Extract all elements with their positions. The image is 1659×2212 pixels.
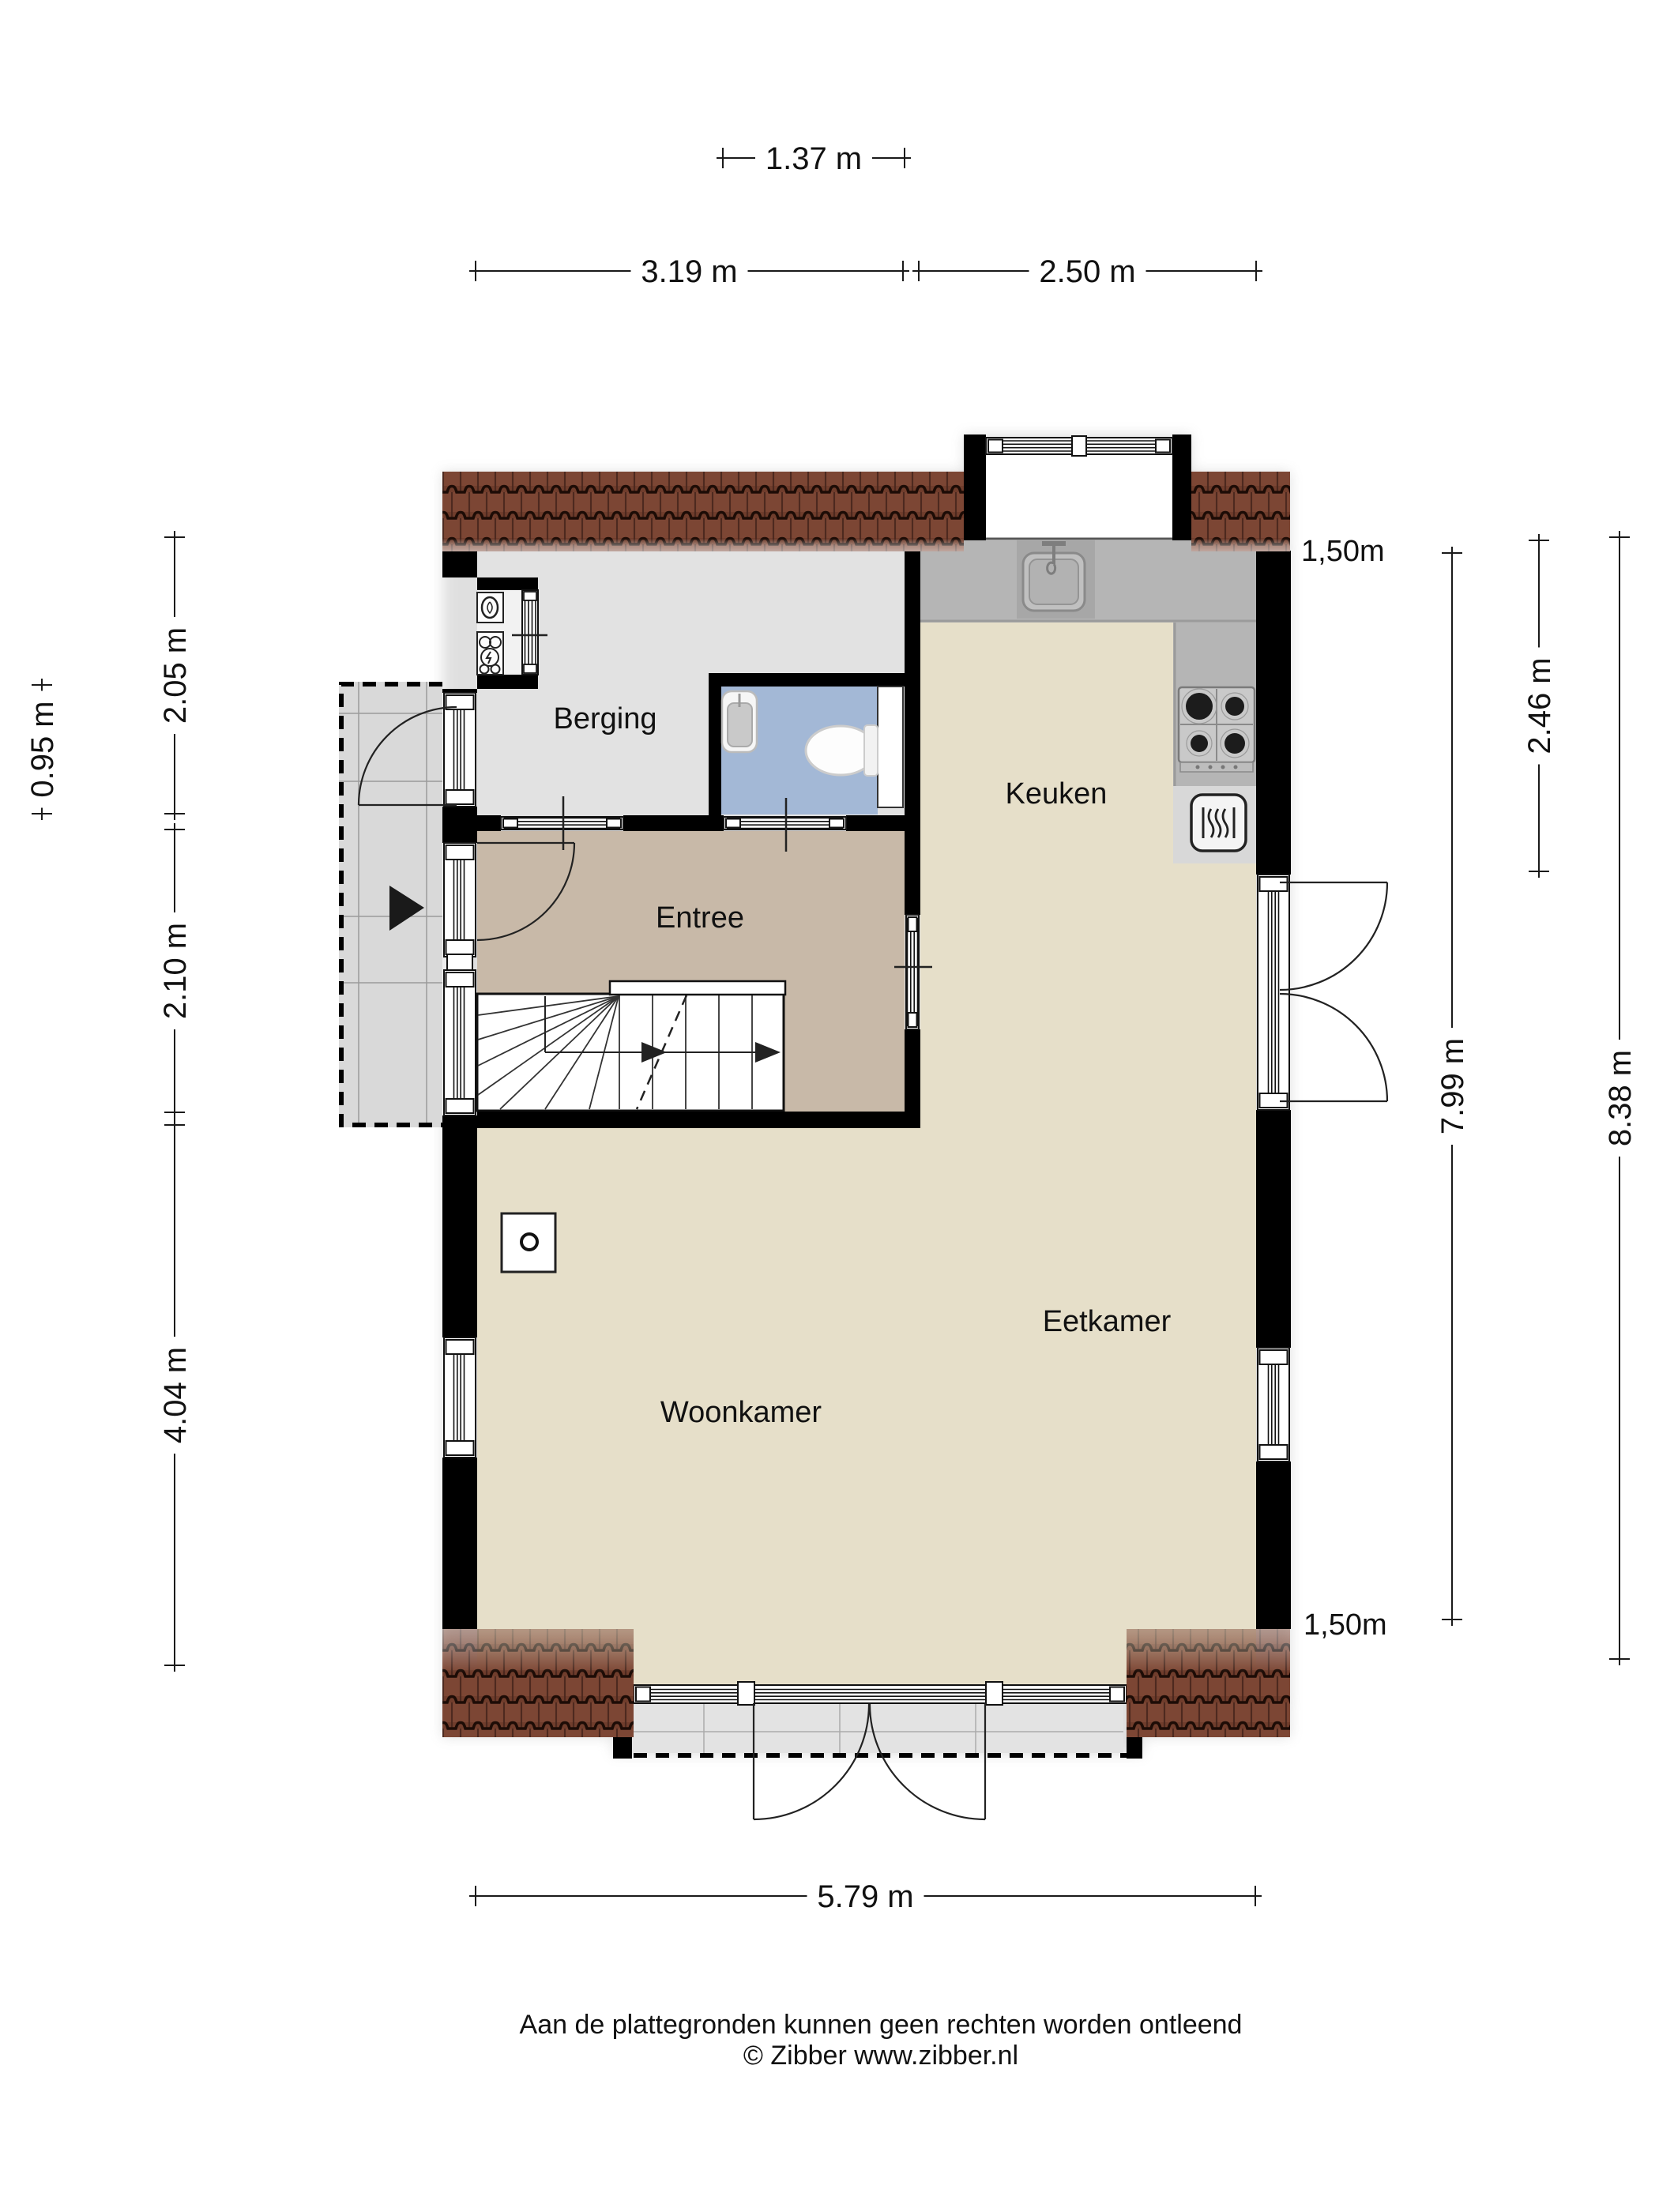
svg-text:3.19 m: 3.19 m [641,254,737,289]
svg-text:1,50m: 1,50m [1303,1608,1387,1642]
svg-text:© Zibber www.zibber.nl: © Zibber www.zibber.nl [743,2041,1018,2071]
svg-text:7.99 m: 7.99 m [1435,1038,1470,1134]
svg-text:0.95 m: 0.95 m [25,701,60,797]
svg-text:2.05 m: 2.05 m [158,627,193,724]
svg-text:5.79 m: 5.79 m [817,1879,913,1914]
svg-text:Keuken: Keuken [1006,777,1108,811]
svg-text:1.37 m: 1.37 m [766,141,862,176]
svg-text:4.04 m: 4.04 m [158,1347,193,1443]
svg-text:Berging: Berging [554,702,657,735]
svg-text:Eetkamer: Eetkamer [1043,1305,1172,1338]
svg-text:8.38 m: 8.38 m [1603,1050,1638,1146]
svg-text:2.50 m: 2.50 m [1039,254,1135,289]
svg-text:1,50m: 1,50m [1301,535,1385,568]
svg-text:2.46 m: 2.46 m [1522,657,1557,754]
svg-text:Aan de plattegronden kunnen ge: Aan de plattegronden kunnen geen rechten… [520,2010,1243,2040]
svg-text:Entree: Entree [656,901,744,935]
svg-text:Woonkamer: Woonkamer [660,1396,822,1429]
svg-text:2.10 m: 2.10 m [158,923,193,1019]
